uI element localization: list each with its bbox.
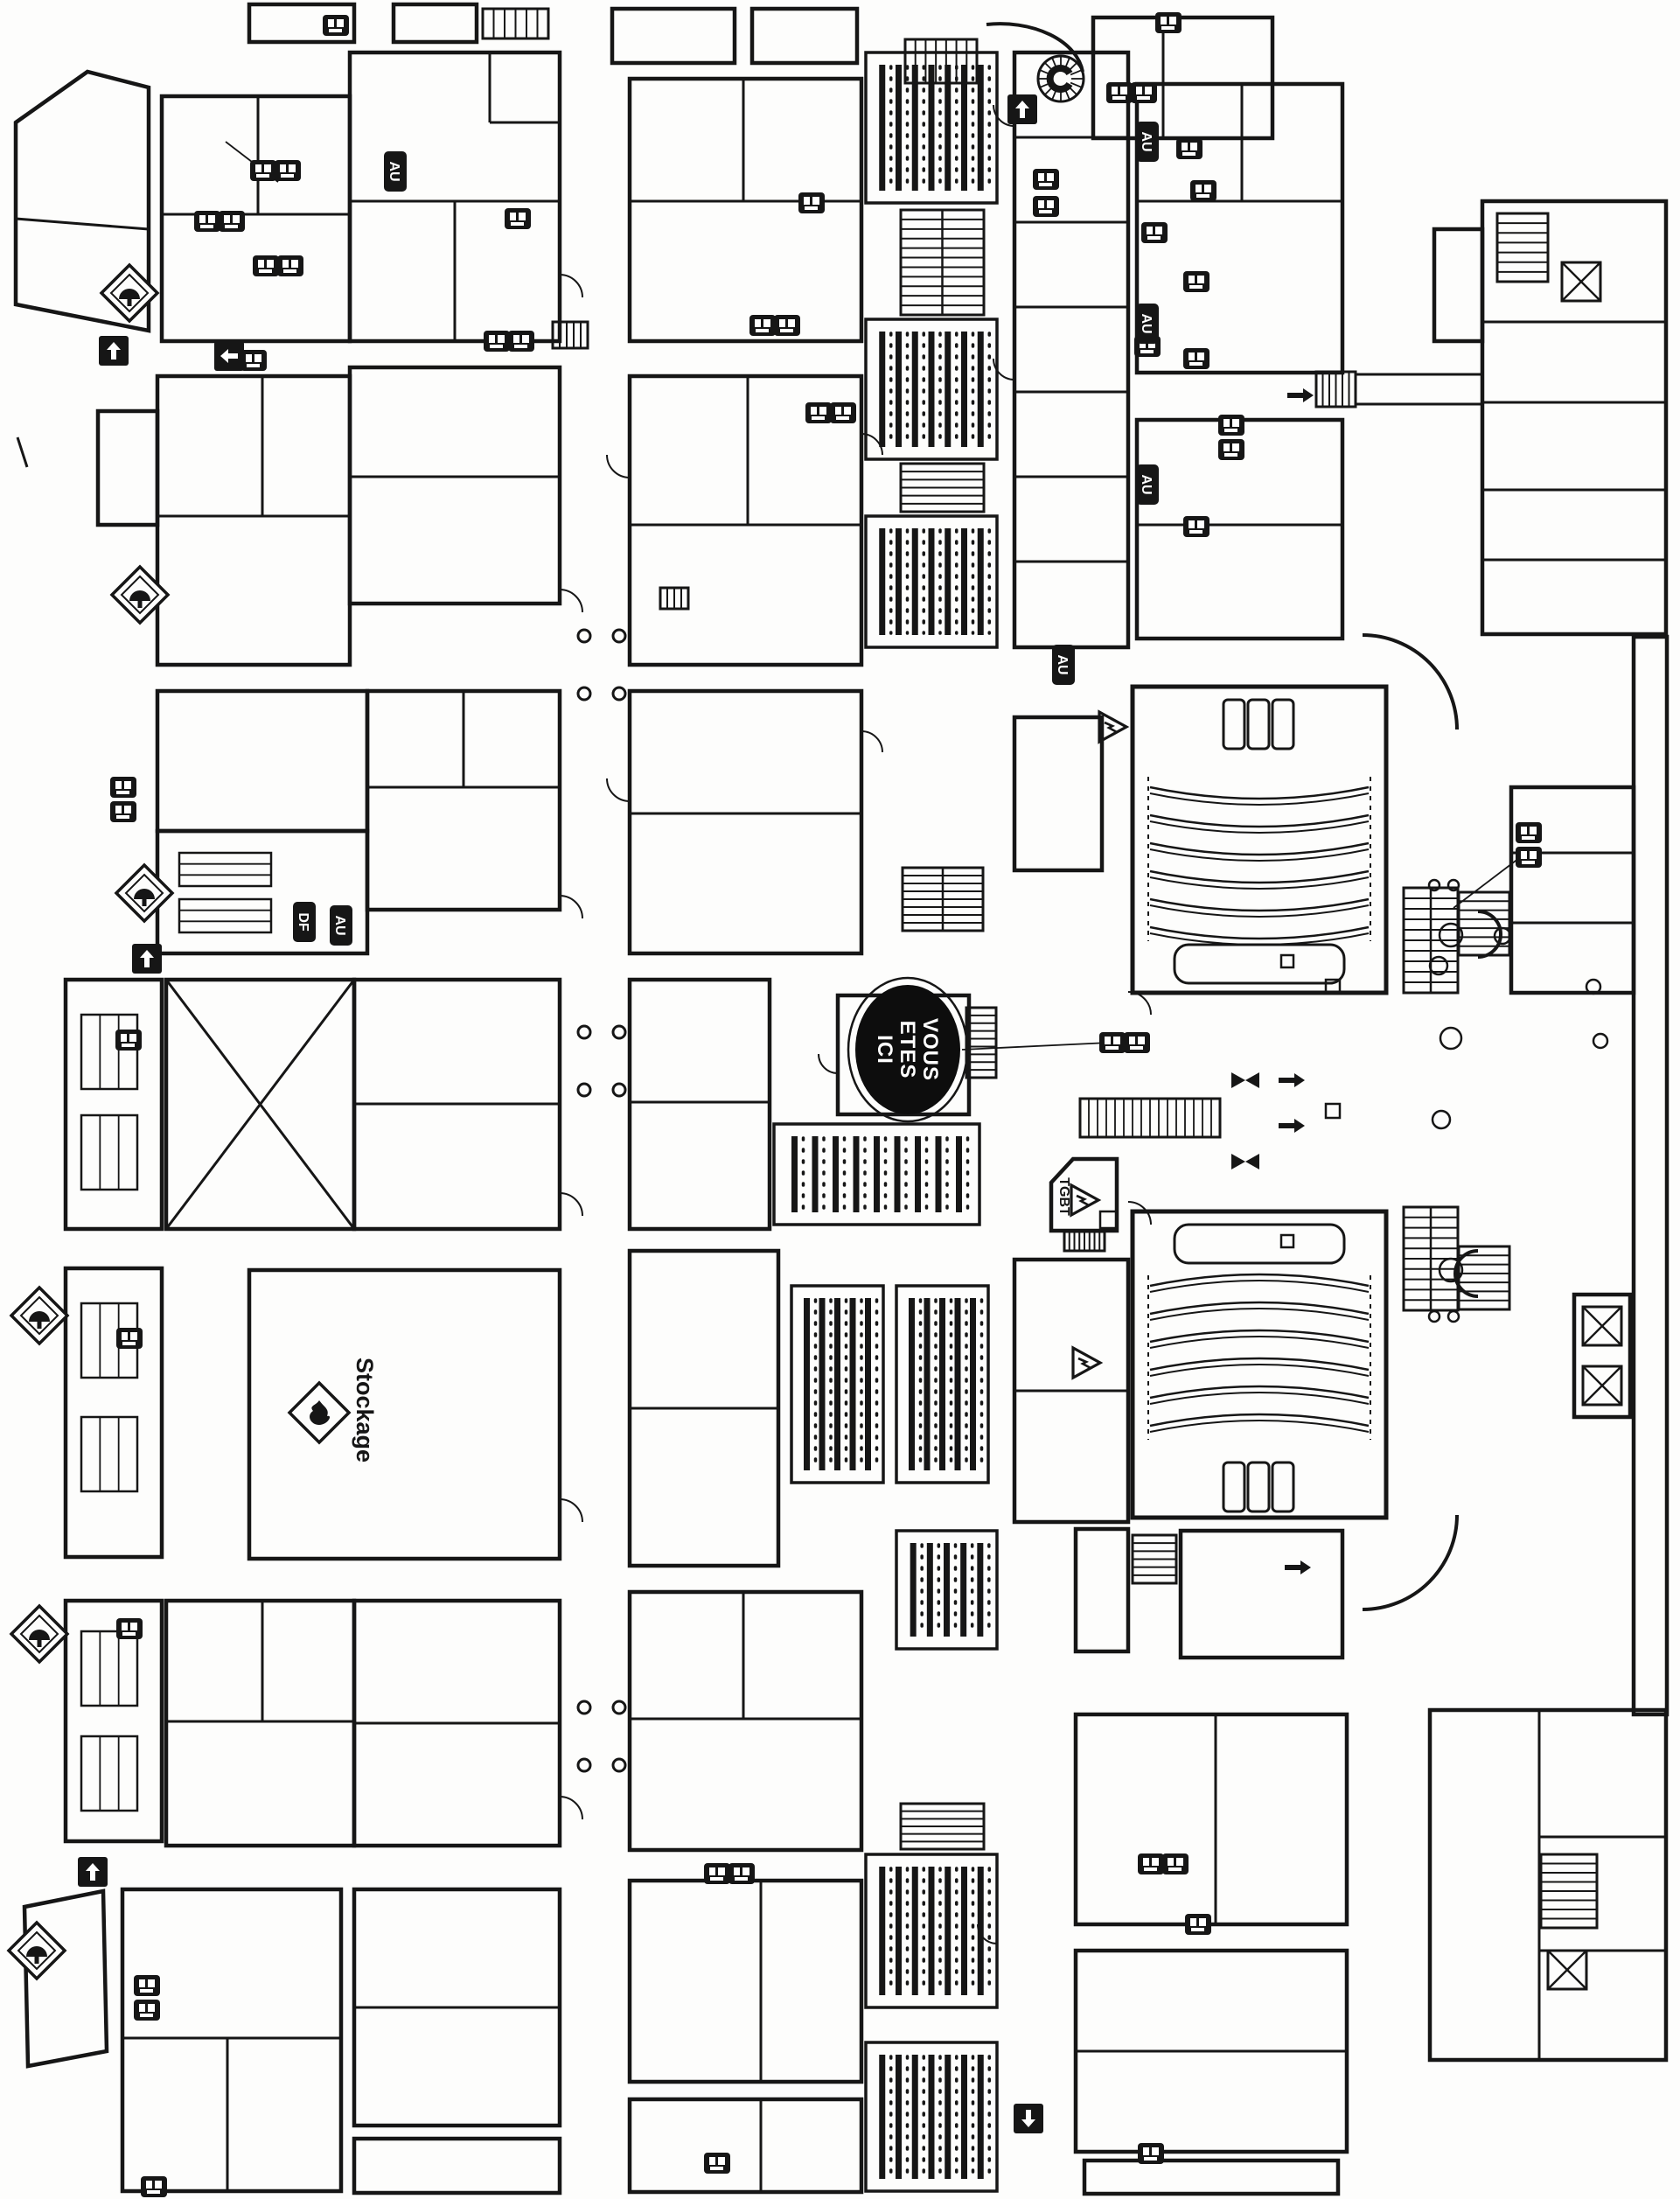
pictogram bbox=[139, 1979, 145, 1987]
pictogram bbox=[1047, 173, 1054, 181]
icon-plate bbox=[728, 1863, 755, 1884]
pictogram bbox=[1138, 1037, 1145, 1044]
safety-equipment-icon bbox=[253, 255, 279, 276]
icon-plate bbox=[116, 1618, 143, 1639]
pictogram bbox=[755, 319, 761, 327]
pictogram bbox=[1143, 1858, 1149, 1866]
pictogram bbox=[1113, 1037, 1120, 1044]
icon-plate bbox=[505, 208, 531, 229]
pictogram bbox=[328, 19, 334, 27]
pictogram bbox=[140, 1989, 153, 1993]
pictogram bbox=[122, 1332, 128, 1340]
pictogram bbox=[115, 806, 122, 813]
safety-equipment-icon bbox=[798, 192, 825, 213]
icon-plate bbox=[110, 777, 136, 798]
icon-plate bbox=[1183, 348, 1209, 369]
pictogram bbox=[140, 2014, 153, 2017]
safety-equipment-icon bbox=[116, 1618, 143, 1639]
pictogram bbox=[519, 213, 526, 220]
icon-plate bbox=[116, 1328, 143, 1349]
icon-plate bbox=[1516, 822, 1542, 843]
icon-plate bbox=[1516, 847, 1542, 868]
icon-plate bbox=[1033, 169, 1059, 190]
safety-equipment-icon bbox=[115, 1030, 142, 1051]
pictogram bbox=[258, 260, 264, 268]
icon-plate bbox=[1033, 196, 1059, 217]
marker-text-line: ETES bbox=[896, 1021, 919, 1079]
pictogram bbox=[264, 164, 271, 172]
icon-plate bbox=[219, 211, 245, 232]
room-label-tgbt: TGBT bbox=[1056, 1177, 1071, 1216]
pictogram bbox=[1189, 276, 1195, 283]
icon-plate bbox=[110, 801, 136, 822]
sign-text: AU bbox=[1139, 313, 1154, 333]
pictogram bbox=[1047, 200, 1054, 208]
safety-equipment-icon bbox=[1185, 1914, 1211, 1935]
letter-sign-au: AU bbox=[330, 905, 352, 946]
pictogram bbox=[1169, 17, 1176, 24]
pictogram bbox=[511, 222, 524, 226]
safety-equipment-icon bbox=[116, 1328, 143, 1349]
pictogram bbox=[147, 2190, 160, 2194]
pictogram bbox=[844, 407, 851, 415]
safety-equipment-icon bbox=[1033, 196, 1059, 217]
pictogram bbox=[1189, 362, 1202, 366]
pictogram bbox=[489, 335, 495, 343]
icon-plate bbox=[253, 255, 279, 276]
safety-equipment-icon bbox=[275, 160, 301, 181]
sign-text: AU bbox=[332, 915, 347, 935]
pictogram bbox=[1521, 827, 1527, 834]
pictogram bbox=[1197, 276, 1204, 283]
pictogram bbox=[200, 225, 213, 228]
safety-equipment-icon bbox=[1124, 1032, 1150, 1053]
pictogram bbox=[1147, 236, 1161, 240]
safety-equipment-icon bbox=[774, 315, 800, 336]
pictogram bbox=[1152, 1858, 1159, 1866]
safety-equipment-icon bbox=[134, 1975, 160, 1996]
pictogram bbox=[259, 269, 272, 273]
safety-equipment-icon bbox=[1183, 348, 1209, 369]
icon-plate bbox=[830, 402, 856, 423]
safety-equipment-icon bbox=[830, 402, 856, 423]
pictogram bbox=[513, 335, 519, 343]
pictogram bbox=[291, 260, 298, 268]
icon-plate bbox=[1124, 1032, 1150, 1053]
pictogram bbox=[116, 791, 129, 794]
arrow-up-icon bbox=[99, 336, 129, 366]
pictogram bbox=[1038, 200, 1044, 208]
icon-plate bbox=[704, 2153, 730, 2174]
pictogram bbox=[709, 1867, 715, 1875]
pictogram bbox=[1190, 1918, 1196, 1926]
pictogram bbox=[1038, 173, 1044, 181]
pictogram bbox=[124, 806, 131, 813]
safety-equipment-icon bbox=[250, 160, 276, 181]
icon-plate bbox=[1218, 439, 1244, 460]
pictogram bbox=[337, 19, 344, 27]
letter-sign-au: AU bbox=[384, 151, 407, 192]
icon-plate bbox=[1162, 1853, 1189, 1874]
marker-text-line: VOUS bbox=[918, 1018, 942, 1081]
safety-equipment-icon bbox=[728, 1863, 755, 1884]
marker-text-line: ICI bbox=[873, 1035, 896, 1065]
pictogram bbox=[805, 206, 818, 210]
arrow-up-icon bbox=[78, 1857, 108, 1887]
safety-equipment-icon bbox=[1176, 138, 1202, 159]
safety-equipment-icon bbox=[1141, 222, 1168, 243]
pictogram bbox=[256, 174, 269, 178]
safety-equipment-icon bbox=[1138, 2143, 1164, 2164]
pictogram bbox=[510, 213, 516, 220]
pictogram bbox=[514, 345, 527, 348]
safety-equipment-icon bbox=[1218, 415, 1244, 436]
icon-plate bbox=[194, 211, 220, 232]
safety-equipment-icon bbox=[1033, 169, 1059, 190]
icon-plate bbox=[1099, 1032, 1126, 1053]
icon-plate bbox=[134, 2000, 160, 2021]
pictogram bbox=[1189, 353, 1195, 360]
safety-equipment-icon bbox=[110, 801, 136, 822]
pictogram bbox=[1105, 1037, 1111, 1044]
icon-plate bbox=[1183, 271, 1209, 292]
safety-equipment-icon bbox=[805, 402, 832, 423]
pictogram bbox=[1168, 1858, 1174, 1866]
room-label-stockage: Stockage bbox=[352, 1358, 378, 1463]
pictogram bbox=[281, 174, 294, 178]
icon-plate bbox=[1176, 138, 1202, 159]
safety-equipment-icon bbox=[1516, 822, 1542, 843]
pictogram bbox=[146, 2181, 152, 2189]
pictogram bbox=[1197, 353, 1204, 360]
icon-plate bbox=[1131, 82, 1157, 103]
fan-stem bbox=[138, 601, 143, 608]
pictogram bbox=[812, 197, 819, 205]
sign-text: AU bbox=[1055, 654, 1070, 674]
pictogram bbox=[267, 260, 274, 268]
pictogram bbox=[742, 1867, 749, 1875]
icon-plate bbox=[1185, 1914, 1211, 1935]
pictogram bbox=[718, 2157, 725, 2165]
safety-equipment-icon bbox=[1131, 82, 1157, 103]
pictogram bbox=[835, 407, 841, 415]
pictogram bbox=[710, 2167, 723, 2170]
pictogram bbox=[1105, 1046, 1119, 1050]
pictogram bbox=[1145, 87, 1152, 94]
pictogram bbox=[225, 225, 238, 228]
letter-sign-au: AU bbox=[1136, 464, 1159, 505]
pictogram bbox=[735, 1877, 748, 1881]
pictogram bbox=[115, 781, 122, 789]
icon-plate bbox=[275, 160, 301, 181]
icon-plate bbox=[134, 1975, 160, 1996]
icon-plate bbox=[250, 160, 276, 181]
safety-equipment-icon bbox=[1162, 1853, 1189, 1874]
icon-plate bbox=[798, 192, 825, 213]
pictogram bbox=[255, 164, 261, 172]
pictogram bbox=[1147, 227, 1153, 234]
pictogram bbox=[233, 215, 240, 223]
pictogram bbox=[734, 1867, 740, 1875]
pictogram bbox=[756, 329, 769, 332]
pictogram bbox=[208, 215, 215, 223]
safety-equipment-icon bbox=[277, 255, 303, 276]
icon-plate bbox=[141, 2176, 167, 2197]
pictogram bbox=[709, 2157, 715, 2165]
safety-equipment-icon bbox=[1190, 180, 1216, 201]
sign-text: AU bbox=[1139, 131, 1154, 151]
pictogram bbox=[224, 215, 230, 223]
pictogram bbox=[122, 1623, 128, 1630]
pictogram bbox=[155, 2181, 162, 2189]
safety-equipment-icon bbox=[1155, 12, 1182, 33]
pictogram bbox=[1039, 210, 1052, 213]
pictogram bbox=[718, 1867, 725, 1875]
icon-plate bbox=[1138, 1853, 1164, 1874]
pictogram bbox=[1530, 827, 1537, 834]
sign-text: DF bbox=[296, 912, 310, 932]
stairs bbox=[901, 464, 984, 512]
pictogram bbox=[1196, 185, 1202, 192]
safety-equipment-icon bbox=[1106, 82, 1133, 103]
fan-stem bbox=[38, 1322, 42, 1329]
letter-sign-au: AU bbox=[1136, 122, 1159, 162]
pictogram bbox=[1143, 2147, 1149, 2155]
arrow-left-icon bbox=[214, 341, 244, 371]
classroom-desk-rows bbox=[791, 1286, 883, 1483]
pictogram bbox=[836, 416, 849, 420]
pictogram bbox=[122, 1044, 135, 1047]
safety-equipment-icon bbox=[240, 350, 267, 371]
pictogram bbox=[124, 781, 131, 789]
sign-text: AU bbox=[1139, 474, 1154, 494]
safety-equipment-icon bbox=[1218, 439, 1244, 460]
safety-equipment-icon bbox=[110, 777, 136, 798]
icon-plate bbox=[484, 331, 510, 352]
pictogram bbox=[116, 815, 129, 819]
pictogram bbox=[1168, 1867, 1182, 1871]
pictogram bbox=[1223, 443, 1230, 451]
floor-plan-page: AUDFAUAUAUAUAUStockageTGBTVOUSETESICI bbox=[0, 0, 1680, 2199]
pictogram bbox=[254, 354, 261, 362]
pictogram bbox=[122, 1342, 136, 1345]
icon-plate bbox=[1141, 222, 1168, 243]
pictogram bbox=[1155, 227, 1162, 234]
icon-plate bbox=[1183, 516, 1209, 537]
icon-plate bbox=[323, 15, 349, 36]
pictogram bbox=[148, 2004, 155, 2012]
pictogram bbox=[1521, 851, 1527, 859]
pictogram bbox=[247, 364, 260, 367]
pictogram bbox=[1176, 1858, 1183, 1866]
icon-plate bbox=[240, 350, 267, 371]
icon-plate bbox=[704, 1863, 730, 1884]
pictogram bbox=[819, 407, 826, 415]
safety-equipment-icon bbox=[484, 331, 510, 352]
pictogram bbox=[812, 416, 825, 420]
classroom-desk-rows bbox=[896, 1286, 988, 1483]
pictogram bbox=[522, 335, 529, 343]
pictogram bbox=[1189, 520, 1195, 528]
pictogram bbox=[199, 215, 206, 223]
pictogram bbox=[329, 29, 342, 32]
pictogram bbox=[1189, 530, 1202, 534]
pictogram bbox=[1136, 87, 1142, 94]
pictogram bbox=[129, 1034, 136, 1042]
pictogram bbox=[1137, 96, 1150, 100]
pictogram bbox=[1199, 1918, 1206, 1926]
safety-equipment-icon bbox=[1516, 847, 1542, 868]
pictogram bbox=[490, 345, 503, 348]
fan-stem bbox=[128, 299, 132, 306]
stairs bbox=[901, 1804, 984, 1849]
pictogram bbox=[1224, 453, 1237, 457]
pictogram bbox=[804, 197, 810, 205]
pictogram bbox=[1190, 143, 1197, 150]
pictogram bbox=[1197, 520, 1204, 528]
arrow-up-icon bbox=[132, 944, 162, 974]
pictogram bbox=[1182, 152, 1196, 156]
pictogram bbox=[1120, 87, 1127, 94]
fan-stem bbox=[35, 1957, 39, 1964]
icon-plate bbox=[277, 255, 303, 276]
pictogram bbox=[763, 319, 770, 327]
pictogram bbox=[811, 407, 817, 415]
pictogram bbox=[130, 1332, 137, 1340]
pictogram bbox=[283, 269, 296, 273]
icon-plate bbox=[774, 315, 800, 336]
pictogram bbox=[1130, 1046, 1143, 1050]
safety-equipment-icon bbox=[749, 315, 776, 336]
icon-plate bbox=[805, 402, 832, 423]
pictogram bbox=[246, 354, 252, 362]
stairs bbox=[1316, 372, 1356, 407]
arrow-up-icon bbox=[1007, 94, 1037, 124]
safety-equipment-icon bbox=[194, 211, 220, 232]
safety-equipment-icon bbox=[1183, 516, 1209, 537]
letter-sign-df: DF bbox=[293, 902, 316, 942]
pictogram bbox=[1232, 419, 1239, 427]
pictogram bbox=[1196, 194, 1209, 198]
safety-equipment-icon bbox=[1138, 1853, 1164, 1874]
icon-plate bbox=[749, 315, 776, 336]
safety-equipment-icon bbox=[1183, 271, 1209, 292]
fan-stem bbox=[38, 1640, 42, 1647]
arrow-down-icon bbox=[1014, 2104, 1043, 2133]
pictogram bbox=[1039, 183, 1052, 186]
pictogram bbox=[1144, 2157, 1157, 2161]
pictogram bbox=[710, 1877, 723, 1881]
icon-plate bbox=[508, 331, 534, 352]
pictogram bbox=[1161, 17, 1167, 24]
pictogram bbox=[1182, 143, 1188, 150]
icon-plate bbox=[1190, 180, 1216, 201]
safety-equipment-icon bbox=[1099, 1032, 1126, 1053]
pictogram bbox=[1144, 1867, 1157, 1871]
safety-equipment-icon bbox=[704, 2153, 730, 2174]
classroom-desk-rows bbox=[896, 1531, 997, 1649]
fan-stem bbox=[143, 899, 147, 906]
icon-plate bbox=[115, 1030, 142, 1051]
sign-text: AU bbox=[387, 161, 401, 181]
pictogram bbox=[1530, 851, 1537, 859]
pictogram bbox=[1189, 285, 1202, 289]
pictogram bbox=[122, 1632, 136, 1636]
safety-equipment-icon bbox=[141, 2176, 167, 2197]
safety-equipment-icon bbox=[704, 1863, 730, 1884]
pictogram bbox=[1152, 2147, 1159, 2155]
pictogram bbox=[779, 319, 785, 327]
pictogram bbox=[1140, 350, 1154, 353]
pictogram bbox=[1522, 836, 1535, 840]
pictogram bbox=[280, 164, 286, 172]
pictogram bbox=[148, 1979, 155, 1987]
pictogram bbox=[1522, 861, 1535, 864]
stairs bbox=[1133, 1535, 1176, 1583]
letter-sign-au: AU bbox=[1052, 645, 1075, 685]
letter-sign-au: AU bbox=[1136, 304, 1159, 344]
pictogram bbox=[139, 2004, 145, 2012]
safety-equipment-icon bbox=[219, 211, 245, 232]
safety-equipment-icon bbox=[505, 208, 531, 229]
icon-plate bbox=[1138, 2143, 1164, 2164]
icon-plate bbox=[1106, 82, 1133, 103]
you-are-here-marker: VOUSETESICI bbox=[848, 978, 967, 1121]
pictogram bbox=[282, 260, 289, 268]
pictogram bbox=[788, 319, 795, 327]
safety-equipment-icon bbox=[134, 2000, 160, 2021]
pictogram bbox=[1191, 1928, 1204, 1931]
pictogram bbox=[121, 1034, 127, 1042]
icon-plate bbox=[1218, 415, 1244, 436]
pictogram bbox=[780, 329, 793, 332]
pictogram bbox=[1112, 87, 1118, 94]
icon-plate bbox=[1155, 12, 1182, 33]
pictogram bbox=[1129, 1037, 1135, 1044]
pictogram bbox=[1161, 26, 1175, 30]
pictogram bbox=[1112, 96, 1126, 100]
pictogram bbox=[498, 335, 505, 343]
safety-equipment-icon bbox=[508, 331, 534, 352]
pictogram bbox=[1232, 443, 1239, 451]
pictogram bbox=[130, 1623, 137, 1630]
pictogram bbox=[1224, 429, 1237, 432]
safety-equipment-icon bbox=[323, 15, 349, 36]
pictogram bbox=[289, 164, 296, 172]
floor-plan: AUDFAUAUAUAUAUStockageTGBTVOUSETESICI bbox=[0, 0, 1680, 2199]
pictogram bbox=[1223, 419, 1230, 427]
pictogram bbox=[1204, 185, 1211, 192]
